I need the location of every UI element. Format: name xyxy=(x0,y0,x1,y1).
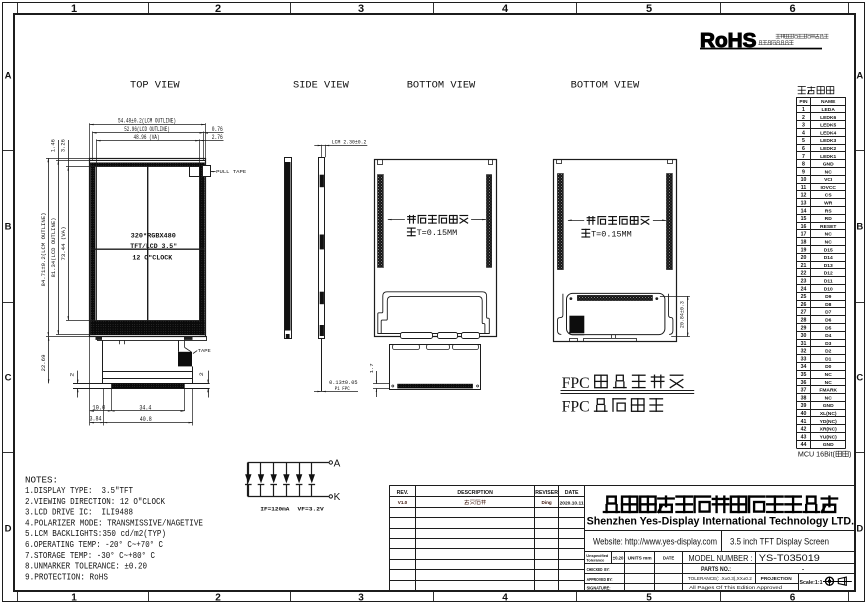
svg-text:2.76: 2.76 xyxy=(212,134,223,141)
svg-text:18: 18 xyxy=(801,240,807,246)
svg-text:81.34(LCD OUTLINE): 81.34(LCD OUTLINE) xyxy=(51,218,57,278)
svg-text:XR(NC): XR(NC) xyxy=(820,427,837,433)
svg-text:FPC: FPC xyxy=(562,398,590,415)
svg-text:PIN: PIN xyxy=(799,99,808,105)
svg-text:A: A xyxy=(856,71,863,82)
svg-text:T=0.15MM: T=0.15MM xyxy=(591,231,632,240)
svg-text:48.96 (VA): 48.96 (VA) xyxy=(134,134,160,141)
svg-text:D12: D12 xyxy=(824,271,833,277)
svg-text:17: 17 xyxy=(801,232,807,238)
svg-text:NOTES:: NOTES: xyxy=(25,475,58,485)
svg-text:CHECKED BY:: CHECKED BY: xyxy=(587,567,610,572)
svg-text:D0: D0 xyxy=(825,364,832,370)
svg-text:TOP VIEW: TOP VIEW xyxy=(130,79,180,91)
svg-text:LEDA: LEDA xyxy=(822,107,836,113)
svg-text:3.LCD DRIVE IC: ILI9488: 3.LCD DRIVE IC: ILI9488 xyxy=(25,508,133,518)
svg-text:52.96(LCD OUTLINE): 52.96(LCD OUTLINE) xyxy=(124,126,170,133)
svg-text:RESET: RESET xyxy=(820,224,836,230)
svg-text:36: 36 xyxy=(801,380,807,386)
svg-text:34: 34 xyxy=(801,364,807,370)
svg-text:V1.0: V1.0 xyxy=(398,500,408,505)
svg-text:25: 25 xyxy=(801,294,807,300)
svg-text:73.44 (VA): 73.44 (VA) xyxy=(61,227,67,261)
svg-text:42: 42 xyxy=(801,427,807,433)
svg-text:16: 16 xyxy=(801,224,807,230)
svg-text:D: D xyxy=(5,524,12,535)
svg-text:20: 20 xyxy=(801,255,807,261)
svg-text:GND: GND xyxy=(823,442,834,448)
svg-text:2: 2 xyxy=(69,373,75,377)
svg-text:1: 1 xyxy=(802,107,805,113)
svg-text:TAPE: TAPE xyxy=(198,348,211,354)
svg-text:RD: RD xyxy=(825,216,833,222)
svg-text:NAME: NAME xyxy=(821,99,836,105)
svg-text:4: 4 xyxy=(502,3,509,15)
svg-text:IOVCC: IOVCC xyxy=(820,185,836,191)
svg-text:0.13±0.05: 0.13±0.05 xyxy=(329,380,358,386)
svg-text:CS: CS xyxy=(825,193,833,199)
svg-text:6: 6 xyxy=(790,593,796,604)
svg-text:LEDK3: LEDK3 xyxy=(820,138,836,144)
svg-text:LEDK5: LEDK5 xyxy=(820,123,836,129)
svg-text:7: 7 xyxy=(802,154,805,160)
svg-text:All Pages Of This Edition Appr: All Pages Of This Edition Approved xyxy=(689,585,782,591)
svg-text:7.STORAGE TEMP: -30° C~+80° C: 7.STORAGE TEMP: -30° C~+80° C xyxy=(25,551,155,561)
svg-text:D: D xyxy=(856,524,863,535)
svg-text:2: 2 xyxy=(215,3,221,15)
svg-text:2: 2 xyxy=(215,593,221,604)
svg-text:VCI: VCI xyxy=(824,177,833,183)
svg-text:YU(NC): YU(NC) xyxy=(820,434,837,440)
svg-text:D4: D4 xyxy=(825,333,832,339)
svg-text:1.46: 1.46 xyxy=(50,139,56,152)
svg-text:C: C xyxy=(5,373,12,384)
svg-text:SIGNATURE:: SIGNATURE: xyxy=(587,586,611,591)
svg-text:33: 33 xyxy=(801,356,807,362)
svg-text:10.0: 10.0 xyxy=(92,404,105,411)
svg-text:NC: NC xyxy=(825,169,833,175)
svg-text:320*RGBX480: 320*RGBX480 xyxy=(131,233,176,240)
svg-text:D8: D8 xyxy=(825,302,832,308)
svg-text:PARTS NO.:: PARTS NO.: xyxy=(701,566,731,573)
svg-text:D13: D13 xyxy=(824,263,833,269)
svg-text:C: C xyxy=(856,373,863,384)
svg-text:1: 1 xyxy=(71,3,77,15)
svg-text:PULL TAPE: PULL TAPE xyxy=(216,169,246,175)
svg-text:APPROVED BY:: APPROVED BY: xyxy=(587,577,613,582)
svg-text:NC: NC xyxy=(825,232,833,238)
svg-text:10: 10 xyxy=(801,177,807,183)
svg-text:LEDK4: LEDK4 xyxy=(820,130,836,136)
svg-text:TOLERANCE(: .X±0.3),XX±0.2: TOLERANCE(: .X±0.3),XX±0.2 xyxy=(688,576,753,581)
svg-text:LEDK2: LEDK2 xyxy=(820,146,836,152)
svg-text:11: 11 xyxy=(801,185,807,191)
svg-text:23: 23 xyxy=(801,279,807,285)
svg-text:20.84±0.3: 20.84±0.3 xyxy=(680,301,686,328)
svg-text:29: 29 xyxy=(801,325,807,331)
svg-text:6.OPERATING TEMP: -20° C~+70°: 6.OPERATING TEMP: -20° C~+70° C xyxy=(25,540,163,550)
svg-text:D11: D11 xyxy=(824,279,833,285)
svg-text:D6: D6 xyxy=(825,318,832,324)
svg-text:K: K xyxy=(334,492,341,503)
svg-text:REVISER: REVISER xyxy=(535,490,558,496)
svg-text:41: 41 xyxy=(801,419,807,425)
svg-text:D1: D1 xyxy=(825,356,832,362)
svg-text:LEDK6: LEDK6 xyxy=(820,115,836,121)
svg-text:27: 27 xyxy=(801,310,807,316)
svg-text:DATE: DATE xyxy=(565,490,579,496)
svg-text:D10: D10 xyxy=(824,286,833,292)
svg-text:Ding: Ding xyxy=(541,500,551,505)
svg-text:GND: GND xyxy=(823,162,834,168)
svg-text:4.POLARIZER MODE: TRANSMISSIVE: 4.POLARIZER MODE: TRANSMISSIVE/NAGETIVE xyxy=(25,518,203,528)
svg-text:37: 37 xyxy=(801,388,807,394)
svg-text:5.LCM BACKLIGHTS:350 cd/m2(TYP: 5.LCM BACKLIGHTS:350 cd/m2(TYP) xyxy=(25,529,166,539)
svg-text:22.69: 22.69 xyxy=(41,355,47,372)
svg-text:TFT/LCD 3.5": TFT/LCD 3.5" xyxy=(130,243,177,250)
svg-text:1: 1 xyxy=(71,593,77,604)
svg-text:5: 5 xyxy=(646,593,652,604)
svg-text:3.26: 3.26 xyxy=(61,139,67,152)
svg-text:2: 2 xyxy=(802,115,805,121)
svg-text:-: - xyxy=(802,566,804,573)
svg-text:6: 6 xyxy=(789,3,795,15)
svg-text:26: 26 xyxy=(801,302,807,308)
svg-text:22: 22 xyxy=(801,271,807,277)
svg-text:12 O"CLOCK: 12 O"CLOCK xyxy=(132,255,172,262)
svg-text:Tolerance: Tolerance xyxy=(586,557,605,562)
svg-text:0.76: 0.76 xyxy=(212,126,223,133)
svg-text:1.7: 1.7 xyxy=(369,363,375,373)
svg-text:DATE: DATE xyxy=(663,556,675,561)
svg-text:A: A xyxy=(5,71,12,82)
svg-text:24: 24 xyxy=(801,286,807,292)
svg-text:2: 2 xyxy=(199,372,205,376)
svg-text:YD(NC): YD(NC) xyxy=(820,419,837,425)
svg-text:YS-T035019: YS-T035019 xyxy=(759,553,820,563)
svg-text:38: 38 xyxy=(801,395,807,401)
svg-text:D5: D5 xyxy=(825,325,832,331)
svg-text:REV.: REV. xyxy=(397,490,409,496)
svg-text:UNITS mm: UNITS mm xyxy=(628,556,652,561)
svg-text:15: 15 xyxy=(801,216,807,222)
svg-text:21: 21 xyxy=(801,263,807,269)
svg-text:14: 14 xyxy=(801,208,807,214)
svg-text:LEDK1: LEDK1 xyxy=(820,154,836,160)
svg-text:44: 44 xyxy=(801,442,807,448)
svg-text:34.4: 34.4 xyxy=(139,404,151,411)
svg-text:30: 30 xyxy=(801,333,807,339)
svg-text:40.8: 40.8 xyxy=(140,416,152,423)
svg-text:BOTTOM VIEW: BOTTOM VIEW xyxy=(407,79,476,91)
svg-text:1.DISPLAY TYPE: 3.5"TFT: 1.DISPLAY TYPE: 3.5"TFT xyxy=(25,486,133,496)
svg-text:3: 3 xyxy=(358,593,364,604)
svg-text:B: B xyxy=(5,222,12,233)
svg-text:NC: NC xyxy=(825,372,833,378)
svg-text:8: 8 xyxy=(802,162,805,168)
svg-text:5: 5 xyxy=(646,3,652,15)
svg-text:Shenzhen Yes-Display Internati: Shenzhen Yes-Display International Techn… xyxy=(587,516,855,528)
svg-text:NC: NC xyxy=(825,240,833,246)
svg-text:PROJECTION: PROJECTION xyxy=(761,576,792,581)
svg-text:8.UNMARKER TOLERANCE: ±0.20: 8.UNMARKER TOLERANCE: ±0.20 xyxy=(25,562,147,572)
svg-text:LCM 2.30±0.2: LCM 2.30±0.2 xyxy=(332,140,367,146)
svg-text:43: 43 xyxy=(801,434,807,440)
svg-text:VF=3.2V: VF=3.2V xyxy=(298,505,325,512)
svg-text:MODEL NUMBER :: MODEL NUMBER : xyxy=(689,554,753,563)
svg-text:12: 12 xyxy=(801,193,807,199)
svg-text:19: 19 xyxy=(801,247,807,253)
svg-text:RS: RS xyxy=(825,208,833,214)
svg-text:9: 9 xyxy=(802,169,805,175)
svg-text:3: 3 xyxy=(358,3,364,15)
svg-text:40: 40 xyxy=(801,411,807,417)
svg-text:Website: http://www.yes-displa: Website: http://www.yes-display.com xyxy=(593,536,717,546)
svg-text:NC: NC xyxy=(825,395,833,401)
svg-text:35: 35 xyxy=(801,372,807,378)
svg-text:DESCRIPTION: DESCRIPTION xyxy=(457,490,493,496)
svg-text:D3: D3 xyxy=(825,341,832,347)
svg-text:WR: WR xyxy=(824,201,833,207)
svg-text:MCU 16Bit(: MCU 16Bit( xyxy=(798,449,836,458)
svg-text:84.71±0.2(LCM OUTLINE): 84.71±0.2(LCM OUTLINE) xyxy=(41,213,47,287)
svg-text:D2: D2 xyxy=(825,349,832,355)
svg-text:9.PROTECTION: RoHS: 9.PROTECTION: RoHS xyxy=(25,572,108,582)
svg-text:39: 39 xyxy=(801,403,807,409)
svg-text:3.84: 3.84 xyxy=(90,416,102,423)
svg-text:32: 32 xyxy=(801,349,807,355)
svg-text:2.VIEWING DIRECTION: 12 O"CLOC: 2.VIEWING DIRECTION: 12 O"CLOCK xyxy=(25,497,166,507)
svg-text:Scale:1:1: Scale:1:1 xyxy=(800,580,823,586)
svg-text:): ) xyxy=(849,449,851,458)
svg-text:NC: NC xyxy=(825,380,833,386)
svg-text:31: 31 xyxy=(801,341,807,347)
svg-text:D14: D14 xyxy=(824,255,833,261)
svg-text:2020.10.11: 2020.10.11 xyxy=(560,500,584,506)
svg-text:BOTTOM VIEW: BOTTOM VIEW xyxy=(571,79,640,91)
svg-text:6: 6 xyxy=(802,146,805,152)
svg-text:54.48±0.2(LCM OUTLINE): 54.48±0.2(LCM OUTLINE) xyxy=(118,118,176,125)
svg-text:FPC: FPC xyxy=(562,375,590,392)
svg-text:B: B xyxy=(856,222,863,233)
svg-text:A: A xyxy=(334,458,341,469)
svg-text:4: 4 xyxy=(802,130,805,136)
svg-text:5: 5 xyxy=(802,138,805,144)
svg-text:3: 3 xyxy=(802,123,805,129)
svg-text:3.5 inch TFT Display Screen: 3.5 inch TFT Display Screen xyxy=(730,536,829,546)
svg-text:SIDE VIEW: SIDE VIEW xyxy=(293,79,349,91)
svg-text:4: 4 xyxy=(502,593,508,604)
svg-text:D15: D15 xyxy=(824,247,833,253)
svg-text:XL(NC): XL(NC) xyxy=(820,411,837,417)
svg-text:FMARK: FMARK xyxy=(819,388,837,394)
svg-text:28: 28 xyxy=(801,318,807,324)
svg-text:IF=120mA: IF=120mA xyxy=(260,505,290,512)
svg-text:D7: D7 xyxy=(825,310,832,316)
svg-text:D9: D9 xyxy=(825,294,832,300)
svg-text:T=0.15MM: T=0.15MM xyxy=(417,229,458,238)
svg-text:GND: GND xyxy=(823,403,834,409)
svg-text:±0.20: ±0.20 xyxy=(613,556,624,561)
svg-text:13: 13 xyxy=(801,201,807,207)
